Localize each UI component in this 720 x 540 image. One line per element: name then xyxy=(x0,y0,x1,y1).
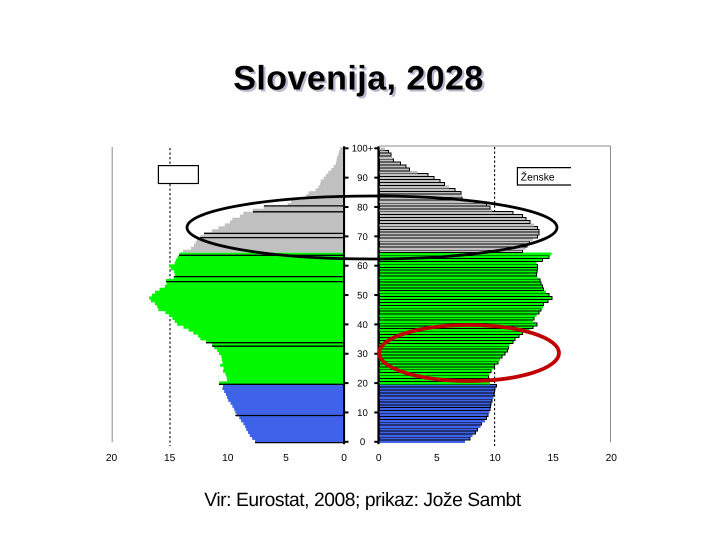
svg-text:50: 50 xyxy=(357,290,368,301)
svg-text:Ženske: Ženske xyxy=(521,172,555,184)
svg-text:15: 15 xyxy=(164,453,176,464)
svg-text:0: 0 xyxy=(360,437,365,448)
svg-text:20: 20 xyxy=(606,453,618,464)
svg-text:80: 80 xyxy=(357,202,368,213)
svg-text:20: 20 xyxy=(106,453,118,464)
svg-text:30: 30 xyxy=(357,349,368,360)
svg-text:5: 5 xyxy=(434,453,440,464)
svg-text:Slovenija, 2028: Slovenija, 2028 xyxy=(233,59,484,97)
svg-text:60: 60 xyxy=(357,261,368,272)
svg-text:5: 5 xyxy=(283,453,289,464)
svg-text:0: 0 xyxy=(376,453,382,464)
svg-text:20: 20 xyxy=(357,379,368,390)
svg-text:Vir: Eurostat, 2008; prikaz: J: Vir: Eurostat, 2008; prikaz: Jože Sambt xyxy=(204,490,522,511)
svg-text:70: 70 xyxy=(357,232,368,243)
svg-text:0: 0 xyxy=(341,453,347,464)
svg-text:100+: 100+ xyxy=(352,144,374,155)
svg-text:10: 10 xyxy=(489,453,501,464)
svg-text:90: 90 xyxy=(357,173,368,184)
svg-text:40: 40 xyxy=(357,320,368,331)
svg-text:10: 10 xyxy=(357,408,368,419)
svg-text:15: 15 xyxy=(547,453,559,464)
svg-text:10: 10 xyxy=(222,453,234,464)
